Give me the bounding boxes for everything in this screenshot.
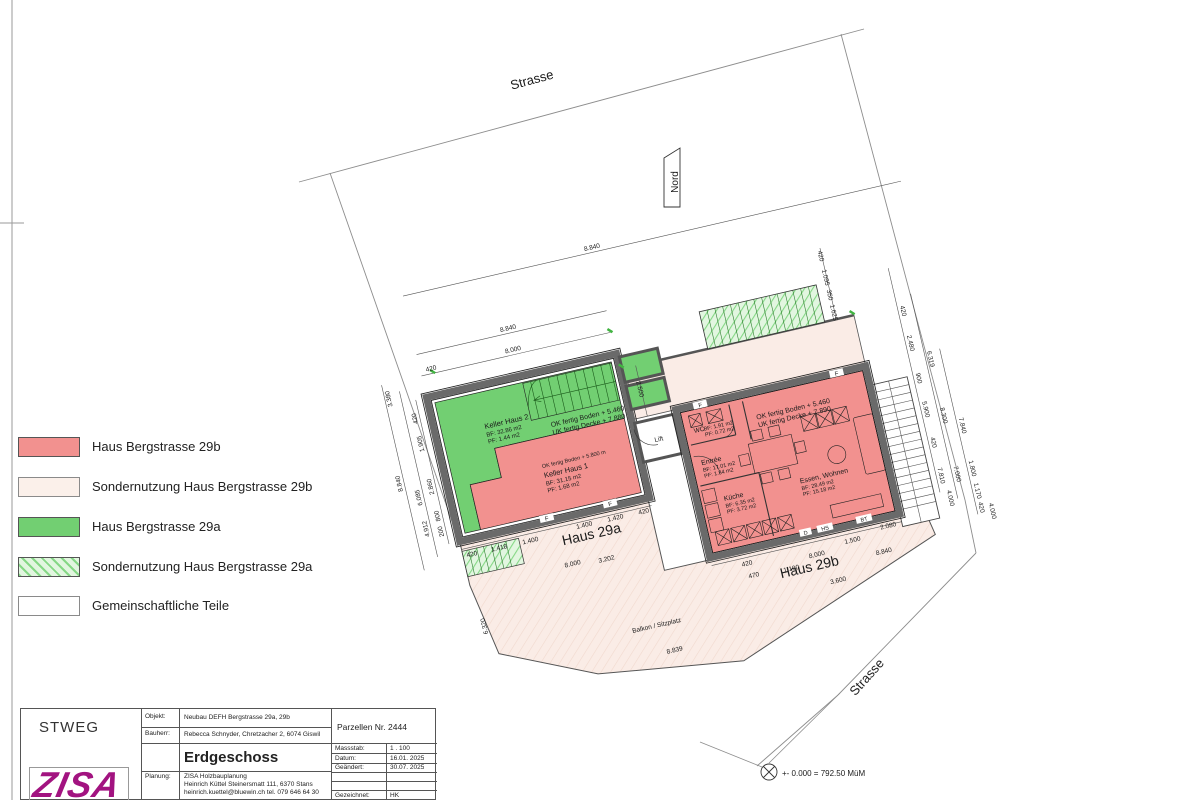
geaendert-value: 30.07. 2025	[390, 764, 424, 771]
dim-label: 4.000	[945, 489, 956, 507]
dim-label: 1.625	[828, 304, 839, 322]
datum-label: Datum:	[335, 755, 356, 762]
dim-label: 1.095	[820, 269, 831, 287]
objekt-label: Objekt:	[145, 713, 166, 720]
dim-label: 1.800	[967, 460, 978, 478]
bauherr-label: Bauherr:	[145, 730, 170, 737]
rotated-plan: Balkon / Sitzplatz	[354, 169, 1016, 728]
legend-item-sondernutzung-29b: Sondernutzung Haus Bergstrasse 29b	[18, 477, 418, 499]
dim-label: 2.480	[905, 334, 916, 352]
dim-label: 4.000	[987, 502, 998, 520]
plan-title: Erdgeschoss	[184, 749, 278, 766]
legend-label: Sondernutzung Haus Bergstrasse 29a	[92, 559, 312, 574]
level-marker: +- 0.000 = 792.50 MüM	[700, 693, 866, 780]
org-name: STWEG	[39, 719, 99, 736]
dim-label: 6.319	[925, 350, 936, 368]
dim-label: 3.380	[384, 390, 395, 408]
legend-label: Haus Bergstrasse 29b	[92, 439, 221, 454]
gezeichnet-value: HK	[390, 792, 399, 799]
planung-line1: ZISA Holzbauplanung	[184, 773, 247, 780]
dim-label: 420	[928, 437, 937, 450]
zisa-logo: ZISA	[29, 767, 129, 800]
dim-label: 420	[816, 250, 825, 263]
street-label-top: Strasse	[509, 67, 555, 93]
north-arrow: Nord	[664, 148, 681, 207]
geaendert-label: Geändert:	[335, 764, 364, 771]
datum-value: 16.01. 2025	[390, 755, 424, 762]
massstab-label: Massstab:	[335, 745, 365, 752]
dim-label: 900	[914, 372, 923, 385]
dim-label: 2.860	[426, 478, 437, 496]
legend-item-sondernutzung-29a: Sondernutzung Haus Bergstrasse 29a	[18, 557, 418, 579]
objekt-value: Neubau DEFH Bergstrasse 29a, 29b	[184, 714, 290, 721]
zisa-logo-text: ZISA	[30, 767, 129, 800]
level-marker-label: +- 0.000 = 792.50 MüM	[782, 769, 866, 778]
legend-swatch-green-hatch	[18, 557, 80, 577]
legend-label: Sondernutzung Haus Bergstrasse 29b	[92, 479, 312, 494]
dim-label: 420	[898, 305, 907, 318]
dim-label: 800	[433, 509, 442, 522]
dim-label: 8.840	[499, 323, 517, 334]
parzelle: Parzellen Nr. 2444	[337, 722, 407, 732]
dim-label: 8.300	[938, 407, 949, 425]
title-block: STWEG ZISA Objekt: Neubau DEFH Bergstras…	[20, 708, 436, 800]
site-plan-svg: Balkon / Sitzplatz	[0, 0, 1200, 800]
legend-item-gemeinschaftlich: Gemeinschaftliche Teile	[18, 596, 418, 618]
sheet-frame	[0, 0, 24, 800]
street-label-right: Strasse	[846, 656, 887, 699]
dim-label: 1.170	[972, 482, 983, 500]
legend-label: Haus Bergstrasse 29a	[92, 519, 221, 534]
dim-label: 350	[825, 289, 834, 302]
dim-label: 7.000	[952, 465, 963, 483]
legend-swatch-green	[18, 517, 80, 537]
legend-swatch-white	[18, 596, 80, 616]
dim-label: 8.000	[504, 345, 522, 356]
gezeichnet-label: Gezeichnet:	[335, 792, 370, 799]
legend-swatch-pale-red	[18, 477, 80, 497]
massstab-value: 1 . 100	[390, 745, 410, 752]
planung-label: Planung:	[145, 773, 171, 780]
dim-label: 7.810	[936, 467, 947, 485]
legend-label: Gemeinschaftliche Teile	[92, 598, 229, 613]
plan-sheet: Balkon / Sitzplatz	[0, 0, 1200, 800]
dim-label: 5.900	[920, 401, 931, 419]
dim-label: 4.912	[421, 520, 432, 538]
dim-label: 420	[425, 364, 438, 373]
planung-line2: Heinrich Küttel Steinersmatt 111, 6370 S…	[184, 781, 313, 788]
dim-label: 200	[437, 525, 446, 538]
legend-item-29b: Haus Bergstrasse 29b	[18, 437, 418, 459]
dim-label: 8.840	[583, 242, 601, 253]
planung-line3: heinrich.kuettel@bluewin.ch tel. 079 646…	[184, 789, 319, 796]
dim-label: 420	[411, 412, 420, 425]
bauherr-value: Rebecca Schnyder, Chretzacher 2, 6074 Gi…	[184, 731, 320, 738]
legend-item-29a: Haus Bergstrasse 29a	[18, 517, 418, 539]
legend-swatch-red	[18, 437, 80, 457]
dim-label: 420	[976, 501, 985, 514]
dim-label: 7.840	[957, 417, 968, 435]
north-label: Nord	[670, 171, 681, 193]
